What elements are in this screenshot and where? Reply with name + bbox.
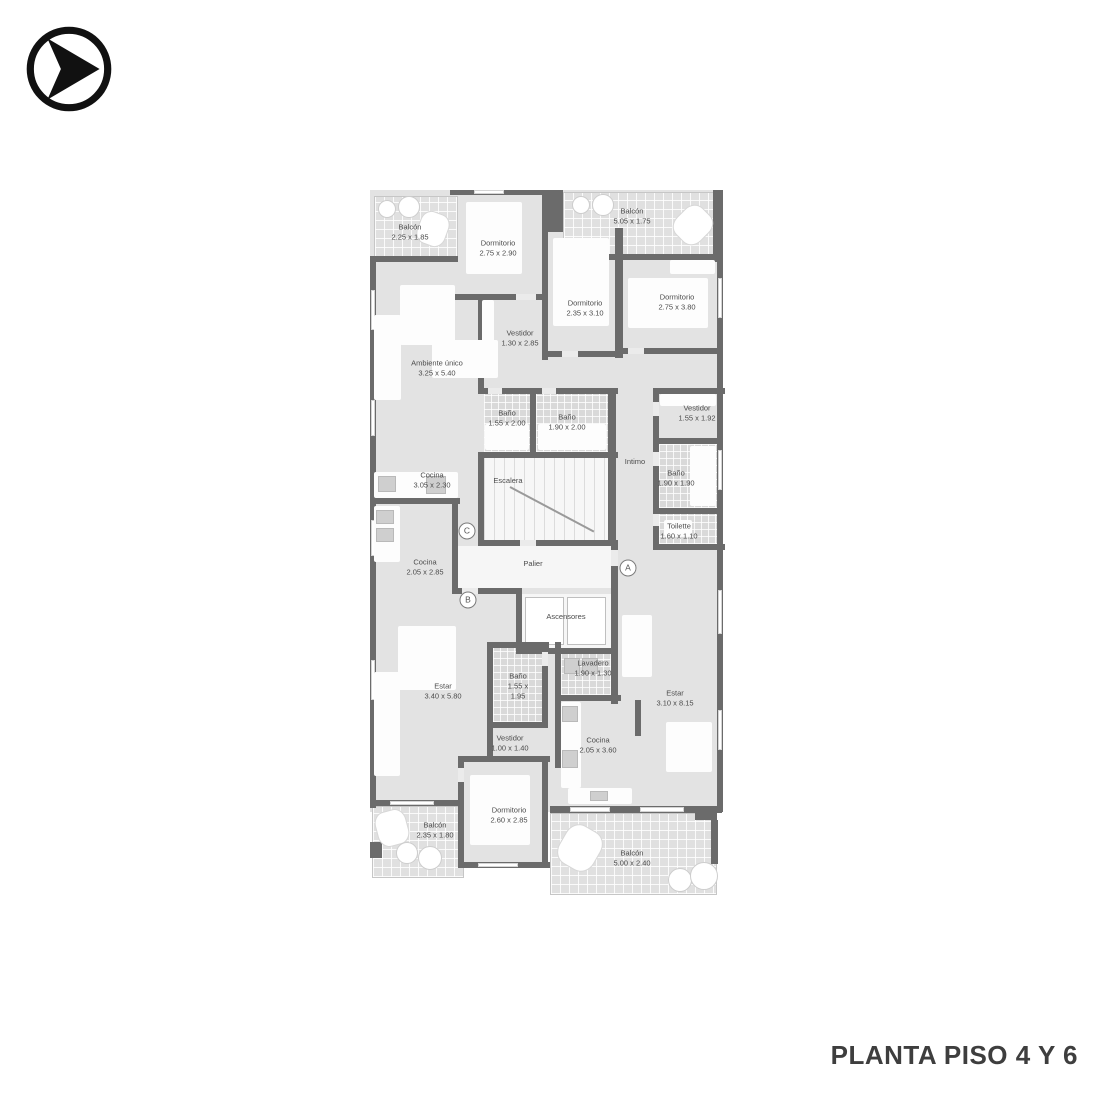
appliance (562, 706, 578, 722)
plant-icon (572, 196, 590, 214)
window (474, 190, 504, 194)
plant-icon (592, 194, 614, 216)
room-label: Baño1.55 x 1.95 (501, 671, 535, 700)
sofa (622, 615, 652, 677)
room-name: Balcón (621, 206, 644, 215)
wall (542, 756, 548, 868)
room-name: Toilette (667, 521, 691, 530)
door-opening (611, 550, 618, 566)
room-dims: 1.00 x 1.40 (491, 743, 528, 753)
room-name: Estar (434, 681, 452, 690)
appliance (376, 528, 394, 542)
plant-icon (378, 200, 396, 218)
door-opening (488, 388, 502, 394)
room-label: Cocina2.05 x 3.60 (579, 735, 616, 755)
room-dims: 5.00 x 2.40 (613, 858, 650, 868)
door-opening (562, 351, 578, 357)
room-name: Cocina (586, 735, 609, 744)
window (718, 710, 722, 750)
room-label: Baño1.90 x 2.00 (548, 412, 585, 432)
room-label: Lavadero1.90 x 1.30 (574, 658, 611, 678)
room-name: Estar (666, 688, 684, 697)
room-dims: 1.55 x 1.95 (501, 681, 535, 701)
room-name: Ascensores (546, 612, 585, 621)
room-name: Cocina (420, 470, 443, 479)
plant-icon (668, 868, 692, 892)
door-opening (542, 652, 548, 666)
sofa (374, 672, 400, 776)
room-name: Baño (558, 412, 576, 421)
window (478, 863, 518, 867)
room-label: Dormitorio2.60 x 2.85 (490, 805, 527, 825)
wall (516, 648, 618, 654)
wall (530, 394, 536, 456)
wall (370, 256, 458, 262)
room-label: Balcón5.00 x 2.40 (613, 848, 650, 868)
door-opening (520, 540, 536, 546)
door-opening (653, 514, 659, 526)
room-name: Cocina (413, 557, 436, 566)
closet (670, 260, 715, 274)
room-dims: 2.05 x 3.60 (579, 745, 616, 755)
table (400, 285, 455, 345)
wall (480, 540, 616, 546)
room-name: Intimo (625, 457, 645, 466)
room-dims: 3.40 x 5.80 (424, 691, 461, 701)
unit-marker-c: C (459, 523, 476, 540)
room-label: Ascensores (546, 612, 585, 622)
wall (487, 642, 549, 648)
wall (370, 842, 382, 858)
appliance (378, 476, 396, 492)
room-dims: 2.75 x 3.80 (658, 302, 695, 312)
room-label: Balcón5.05 x 1.75 (613, 206, 650, 226)
door-opening (653, 452, 659, 466)
room-name: Dormitorio (660, 292, 695, 301)
room-dims: 3.05 x 2.30 (413, 480, 450, 490)
room-name: Vestidor (506, 328, 533, 337)
room-name: Baño (509, 671, 527, 680)
door-opening (458, 768, 464, 782)
room-label: Dormitorio2.75 x 3.80 (658, 292, 695, 312)
appliance (376, 510, 394, 524)
room-dims: 2.25 x 1.85 (391, 232, 428, 242)
room-dims: 1.55 x 2.00 (488, 418, 525, 428)
wall (478, 452, 484, 546)
room-dims: 3.25 x 5.40 (411, 368, 463, 378)
plan-title: PLANTA PISO 4 Y 6 (831, 1040, 1078, 1071)
room-dims: 1.90 x 1.90 (657, 478, 694, 488)
unit-marker-b: B (460, 592, 477, 609)
room-name: Balcón (424, 820, 447, 829)
wall (711, 820, 718, 864)
arrow-in-circle-icon (24, 24, 114, 114)
room-label: Cocina2.05 x 2.85 (406, 557, 443, 577)
unit-marker-a: A (620, 560, 637, 577)
bathtub (485, 424, 529, 450)
room-dims: 2.35 x 1.80 (416, 830, 453, 840)
room-label: Vestidor1.30 x 2.85 (501, 328, 538, 348)
room-dims: 3.10 x 8.15 (656, 698, 693, 708)
room-dims: 2.05 x 2.85 (406, 567, 443, 577)
room-dims: 1.90 x 1.30 (574, 668, 611, 678)
window (718, 450, 722, 490)
table (666, 722, 712, 772)
wall (555, 695, 621, 701)
wall (370, 498, 460, 504)
room-dims: 2.75 x 2.90 (479, 248, 516, 258)
wall (487, 722, 548, 728)
room-name: Balcón (399, 222, 422, 231)
plant-icon (418, 846, 442, 870)
window (718, 278, 722, 318)
room-label: Vestidor1.55 x 1.92 (678, 403, 715, 423)
room-name: Dormitorio (568, 298, 603, 307)
plant-icon (398, 196, 420, 218)
room-label: Baño1.90 x 1.90 (657, 468, 694, 488)
wall (615, 228, 623, 358)
room-label: Dormitorio2.75 x 2.90 (479, 238, 516, 258)
wall (478, 452, 618, 458)
room-label: Escalera (493, 476, 522, 486)
room-name: Balcón (621, 848, 644, 857)
room-dims: 1.55 x 1.92 (678, 413, 715, 423)
window (390, 801, 434, 805)
room-name: Vestidor (496, 733, 523, 742)
window (640, 807, 684, 812)
room-label: Intimo (625, 457, 645, 467)
wall (545, 351, 623, 357)
sofa (374, 315, 401, 400)
room-dims: 1.90 x 2.00 (548, 422, 585, 432)
room-dims: 1.60 x 1.10 (660, 531, 697, 541)
room-label: Toilette1.60 x 1.10 (660, 521, 697, 541)
room-label: Estar3.10 x 8.15 (656, 688, 693, 708)
window (570, 807, 610, 812)
room-dims: 1.30 x 2.85 (501, 338, 538, 348)
room-label: Estar3.40 x 5.80 (424, 681, 461, 701)
door-opening (516, 294, 536, 300)
closet (482, 300, 494, 352)
room-dims: 2.35 x 3.10 (566, 308, 603, 318)
room-name: Lavadero (577, 658, 608, 667)
wall (653, 508, 723, 514)
room-name: Ambiente único (411, 358, 463, 367)
arrow-logo (24, 24, 114, 114)
room-label: Vestidor1.00 x 1.40 (491, 733, 528, 753)
room-name: Dormitorio (481, 238, 516, 247)
wall (713, 190, 723, 262)
window (371, 400, 375, 436)
room-name: Vestidor (683, 403, 710, 412)
wall (695, 813, 717, 820)
sink (590, 791, 608, 801)
appliance (562, 750, 578, 768)
room-dims: 2.60 x 2.85 (490, 815, 527, 825)
room-label: Balcón2.25 x 1.85 (391, 222, 428, 242)
room-dims: 5.05 x 1.75 (613, 216, 650, 226)
wall (653, 544, 725, 550)
wall (608, 394, 616, 546)
room-name: Baño (498, 408, 516, 417)
room-label: Baño1.55 x 2.00 (488, 408, 525, 428)
plant-icon (690, 862, 718, 890)
wall (635, 700, 641, 736)
door-opening (628, 348, 644, 354)
room-label: Cocina3.05 x 2.30 (413, 470, 450, 490)
window (718, 590, 722, 634)
room-label: Balcón2.35 x 1.80 (416, 820, 453, 840)
floor-plan: Balcón2.25 x 1.85 Dormitorio2.75 x 2.90 … (370, 190, 726, 896)
wall (452, 498, 458, 594)
room-name: Dormitorio (492, 805, 527, 814)
room-label: Palier (523, 559, 542, 569)
room-name: Baño (667, 468, 685, 477)
wall (542, 190, 548, 360)
wall (653, 438, 723, 444)
room-name: Escalera (493, 476, 522, 485)
door-opening (542, 388, 556, 394)
plant-icon (396, 842, 418, 864)
door-opening (653, 402, 659, 416)
room-label: Ambiente único3.25 x 5.40 (411, 358, 463, 378)
room-name: Palier (523, 559, 542, 568)
room-label: Dormitorio2.35 x 3.10 (566, 298, 603, 318)
wall (458, 756, 550, 762)
